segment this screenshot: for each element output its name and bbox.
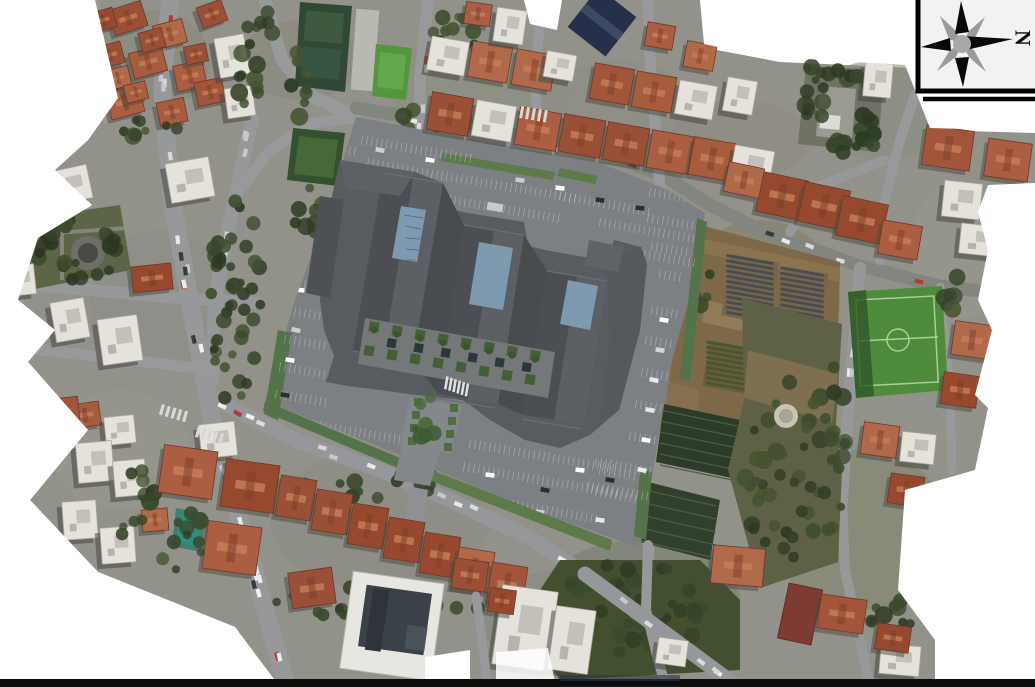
svg-text:N: N — [1011, 30, 1035, 46]
